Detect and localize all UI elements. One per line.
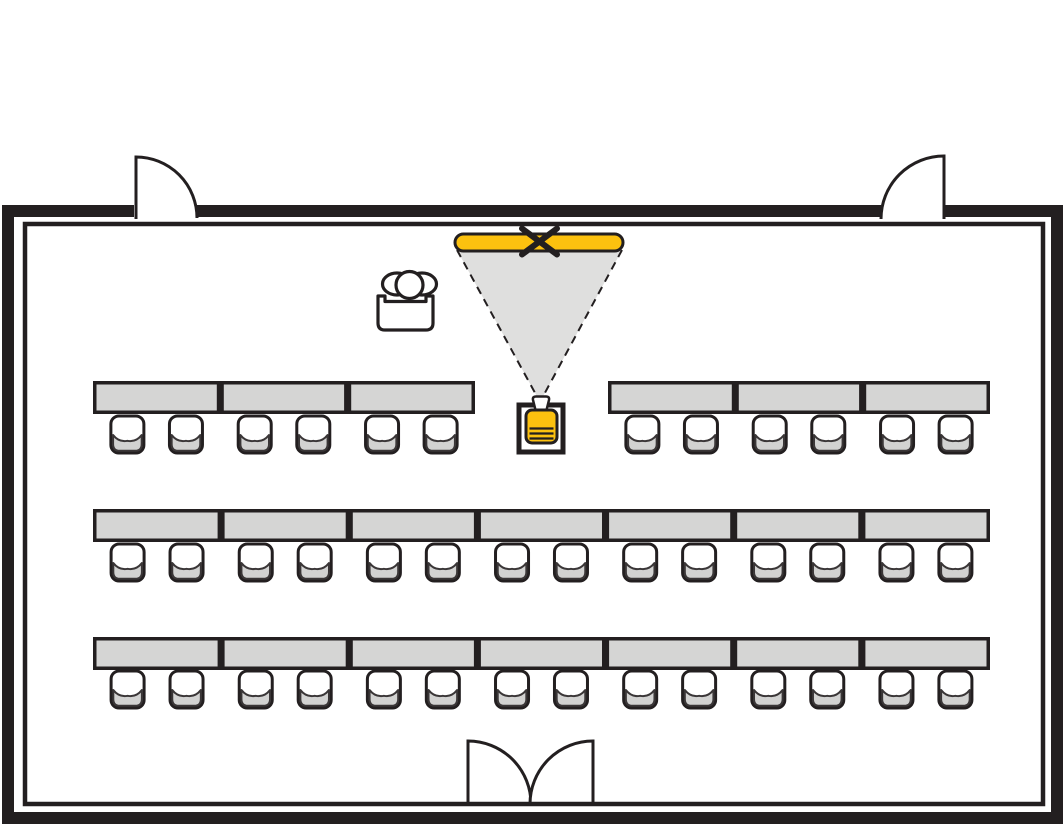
chair: [170, 544, 203, 581]
chair: [239, 544, 272, 581]
chair: [426, 544, 459, 581]
chair: [367, 671, 400, 708]
table: [97, 385, 217, 411]
chair: [239, 671, 272, 708]
chair: [298, 544, 331, 581]
chair: [496, 671, 529, 708]
table: [97, 641, 218, 667]
chair: [626, 416, 659, 453]
chair: [683, 544, 716, 581]
table: [609, 513, 730, 539]
chair: [939, 544, 972, 581]
table: [865, 641, 986, 667]
chair: [811, 544, 844, 581]
presenter-head: [396, 272, 423, 299]
chair: [752, 671, 785, 708]
chair: [169, 416, 202, 453]
chair: [880, 671, 913, 708]
chair: [683, 671, 716, 708]
table: [225, 513, 346, 539]
chair: [880, 544, 913, 581]
chair: [554, 671, 587, 708]
chair: [111, 544, 144, 581]
chair: [753, 416, 786, 453]
chair: [684, 416, 717, 453]
chair: [939, 671, 972, 708]
projector: [519, 397, 563, 453]
table: [609, 641, 730, 667]
presenter-lectern: [378, 272, 437, 331]
chair: [170, 671, 203, 708]
chair: [624, 671, 657, 708]
chair: [367, 544, 400, 581]
meeting-room-floor-plan: [0, 0, 1063, 825]
table: [353, 513, 474, 539]
table: [737, 513, 858, 539]
chair: [297, 416, 330, 453]
chair: [624, 544, 657, 581]
chair: [366, 416, 399, 453]
table: [865, 513, 986, 539]
chair: [238, 416, 271, 453]
table: [97, 513, 218, 539]
table: [353, 641, 474, 667]
table: [225, 641, 346, 667]
chair: [111, 416, 144, 453]
lectern-desk: [378, 296, 433, 330]
chair: [298, 671, 331, 708]
table: [612, 385, 732, 411]
table: [481, 641, 602, 667]
chair: [752, 544, 785, 581]
chair: [426, 671, 459, 708]
chair: [111, 671, 144, 708]
floor-plan-svg: [0, 0, 1063, 825]
chair: [881, 416, 914, 453]
chair: [939, 416, 972, 453]
table: [737, 641, 858, 667]
chair: [424, 416, 457, 453]
table: [481, 513, 602, 539]
projector-lens: [533, 397, 549, 411]
chair: [812, 416, 845, 453]
chair: [811, 671, 844, 708]
table: [866, 385, 986, 411]
table: [224, 385, 344, 411]
table: [351, 385, 471, 411]
table: [739, 385, 859, 411]
chair: [554, 544, 587, 581]
chair: [496, 544, 529, 581]
